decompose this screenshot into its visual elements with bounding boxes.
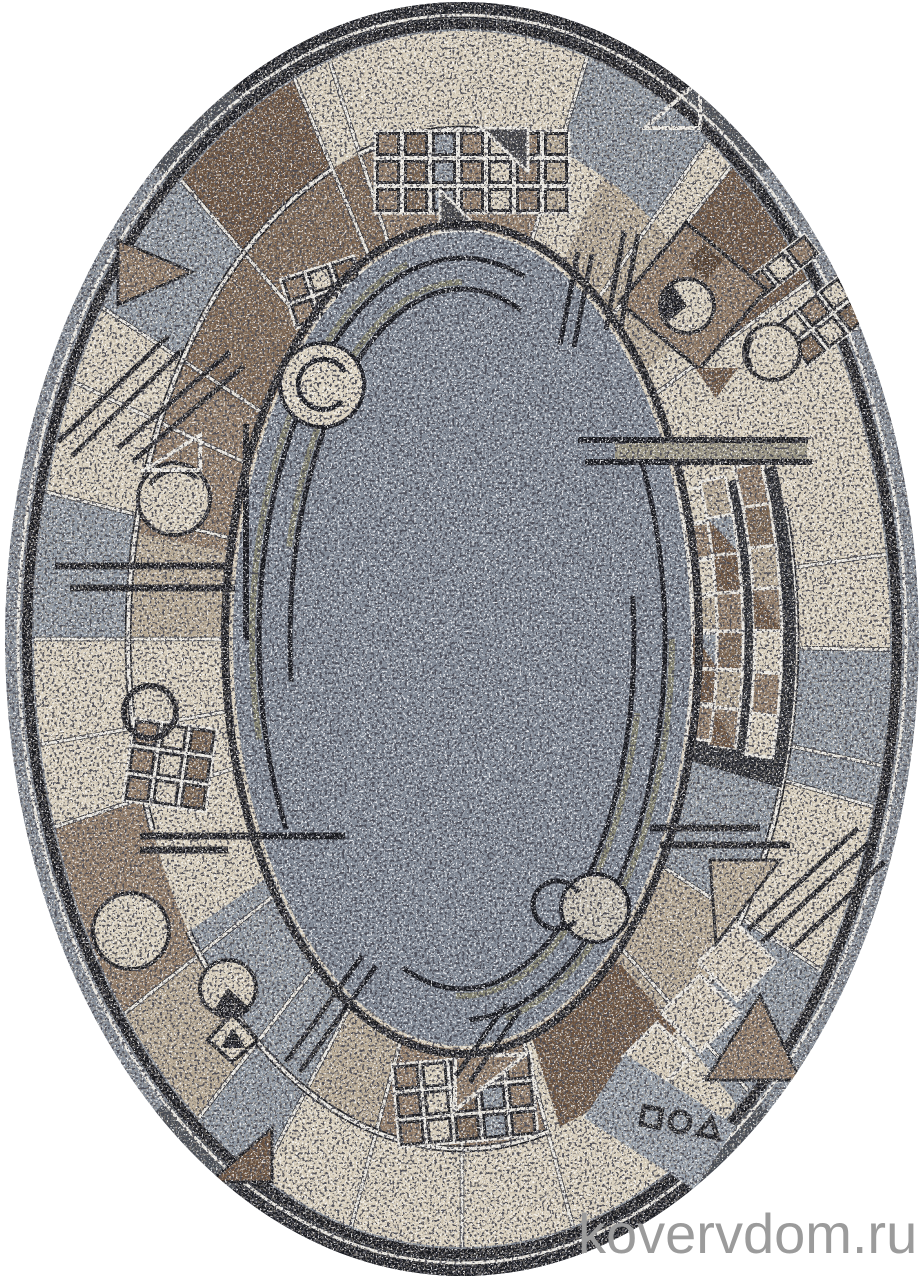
svg-text:kovervdom.ru: kovervdom.ru: [578, 1202, 917, 1265]
